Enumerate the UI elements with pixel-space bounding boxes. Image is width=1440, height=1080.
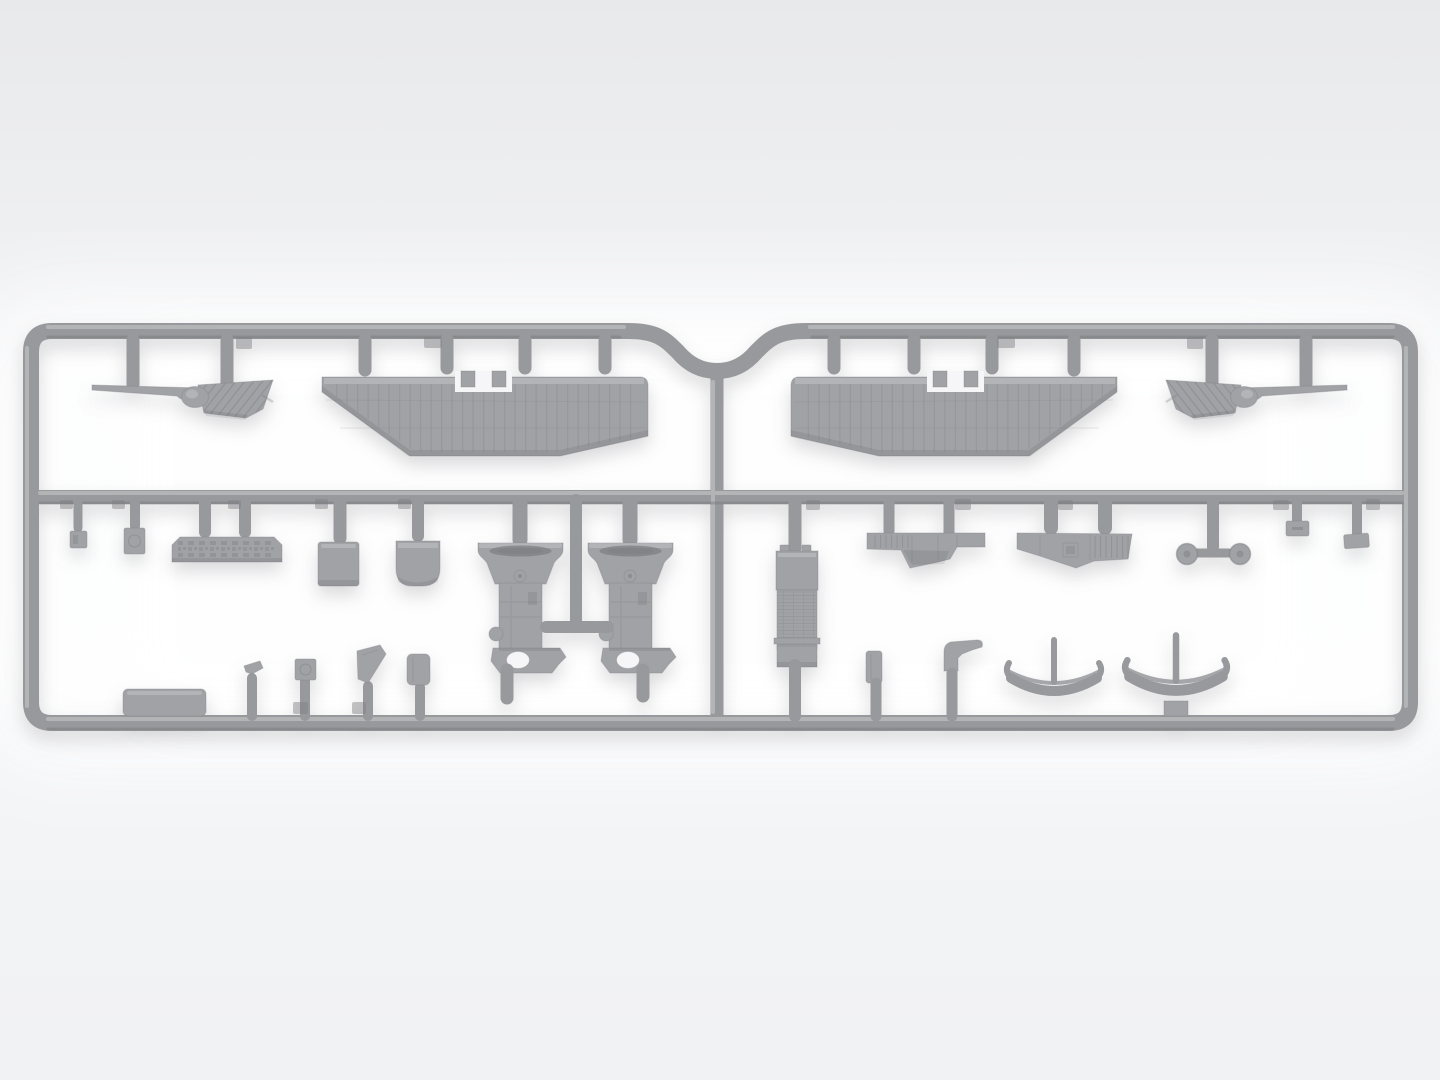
tiny-square-fitting [70,531,87,548]
sprue [27,327,1410,729]
bottom-rail-gates-left [252,678,420,716]
hook-fitting [944,640,982,671]
square-ring-fitting [295,659,316,680]
cowling-block-part [123,689,206,716]
upper-wing-section-part-1 [867,533,985,568]
small-plate-with-ring [124,528,145,554]
small-round-rect-fitting [407,654,430,685]
arrow-fitting [244,661,263,674]
ski-foot-gate [1164,701,1188,716]
angled-blade-fitting [357,645,386,683]
top-row-right-half-mirrored [791,337,1347,456]
seat-plate-part [396,541,440,586]
landing-ski-part-2 [1125,635,1227,716]
small-plate-fitting [1344,533,1370,549]
radiator-part [774,545,820,667]
upper-wing-section-part-2 [1017,533,1132,568]
instrument-panel-part [172,537,282,562]
slotted-fitting [1286,521,1309,536]
bulkhead-plate-part [318,542,359,586]
top-row-left-half [92,337,648,456]
engine-bearer-part-1 [478,543,566,673]
sprue-render [0,0,1440,1080]
engine-bearer-part-2 [588,543,676,673]
landing-ski-part-1 [1007,640,1101,691]
render-stage [0,0,1440,1080]
